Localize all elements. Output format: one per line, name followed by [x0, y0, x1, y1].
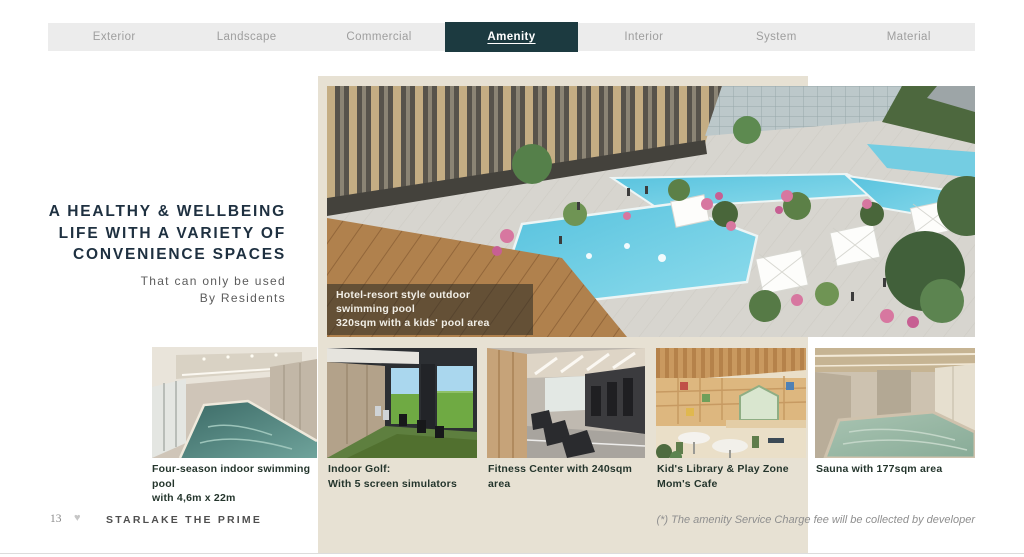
- thumbnail-sauna[interactable]: [815, 348, 975, 458]
- caption-line: Sauna with 177sqm area: [816, 462, 978, 477]
- caption-line: With 5 screen simulators: [328, 477, 480, 492]
- page-number: 13: [50, 513, 62, 525]
- caption-line: Four-season indoor swimming pool: [152, 462, 324, 491]
- caption-kids-library: Kid's Library & Play Zone Mom's Cafe: [657, 462, 809, 491]
- tab-label: Material: [887, 31, 931, 43]
- tab-label: Amenity: [487, 31, 535, 43]
- tab-commercial[interactable]: Commercial: [313, 23, 445, 51]
- thumbnail-indoor-golf[interactable]: [327, 348, 477, 458]
- caption-sauna: Sauna with 177sqm area: [816, 462, 978, 477]
- main-image-caption: Hotel-resort style outdoor swimming pool…: [327, 284, 533, 335]
- service-charge-note: (*) The amenity Service Charge fee will …: [656, 514, 975, 526]
- subtitle-line: By Residents: [38, 290, 286, 307]
- caption-line: Indoor Golf:: [328, 462, 480, 477]
- headline-line: LIFE WITH A VARIETY OF: [38, 223, 286, 245]
- slide-bottom-divider: [0, 553, 1024, 554]
- caption-line: Mom's Cafe: [657, 477, 809, 492]
- fitness-center-illustration: [487, 348, 645, 458]
- caption-fitness-center: Fitness Center with 240sqm area: [488, 462, 648, 491]
- headline-line: A HEALTHY & WELLBEING: [38, 201, 286, 223]
- sauna-illustration: [815, 348, 975, 458]
- thumbnail-kids-library[interactable]: [656, 348, 806, 458]
- kids-library-illustration: [656, 348, 806, 458]
- tab-system[interactable]: System: [710, 23, 842, 51]
- heart-icon: ♥: [74, 512, 81, 524]
- caption-line: with 4,6m x 22m: [152, 491, 324, 506]
- caption-line: Kid's Library & Play Zone: [657, 462, 809, 477]
- headline-block: A HEALTHY & WELLBEING LIFE WITH A VARIET…: [38, 201, 286, 307]
- tab-label: Exterior: [93, 31, 136, 43]
- indoor-pool-illustration: [152, 347, 317, 458]
- tab-amenity[interactable]: Amenity: [445, 22, 577, 52]
- headline-line: CONVENIENCE SPACES: [38, 244, 286, 266]
- tab-exterior[interactable]: Exterior: [48, 23, 180, 51]
- caption-indoor-golf: Indoor Golf: With 5 screen simulators: [328, 462, 480, 491]
- tab-label: Commercial: [346, 31, 411, 43]
- main-caption-line: Hotel-resort style outdoor swimming pool: [336, 288, 524, 316]
- tab-bar: Exterior Landscape Commercial Amenity In…: [48, 23, 975, 51]
- tab-label: Landscape: [217, 31, 277, 43]
- headline-subtitle: That can only be used By Residents: [38, 273, 286, 307]
- amenity-slide: Exterior Landscape Commercial Amenity In…: [0, 0, 1024, 557]
- brand-name: STARLAKE THE PRIME: [106, 514, 262, 526]
- thumbnail-indoor-pool[interactable]: [152, 347, 317, 458]
- main-caption-line: 320sqm with a kids' pool area: [336, 316, 524, 330]
- subtitle-line: That can only be used: [38, 273, 286, 290]
- indoor-golf-illustration: [327, 348, 477, 458]
- tab-material[interactable]: Material: [843, 23, 975, 51]
- tab-interior[interactable]: Interior: [578, 23, 710, 51]
- tab-label: Interior: [624, 31, 663, 43]
- main-image-outdoor-pool: Hotel-resort style outdoor swimming pool…: [327, 86, 975, 337]
- caption-indoor-pool: Four-season indoor swimming pool with 4,…: [152, 462, 324, 506]
- tab-landscape[interactable]: Landscape: [180, 23, 312, 51]
- thumbnail-fitness-center[interactable]: [487, 348, 645, 458]
- caption-line: Fitness Center with 240sqm area: [488, 462, 648, 491]
- tab-label: System: [756, 31, 797, 43]
